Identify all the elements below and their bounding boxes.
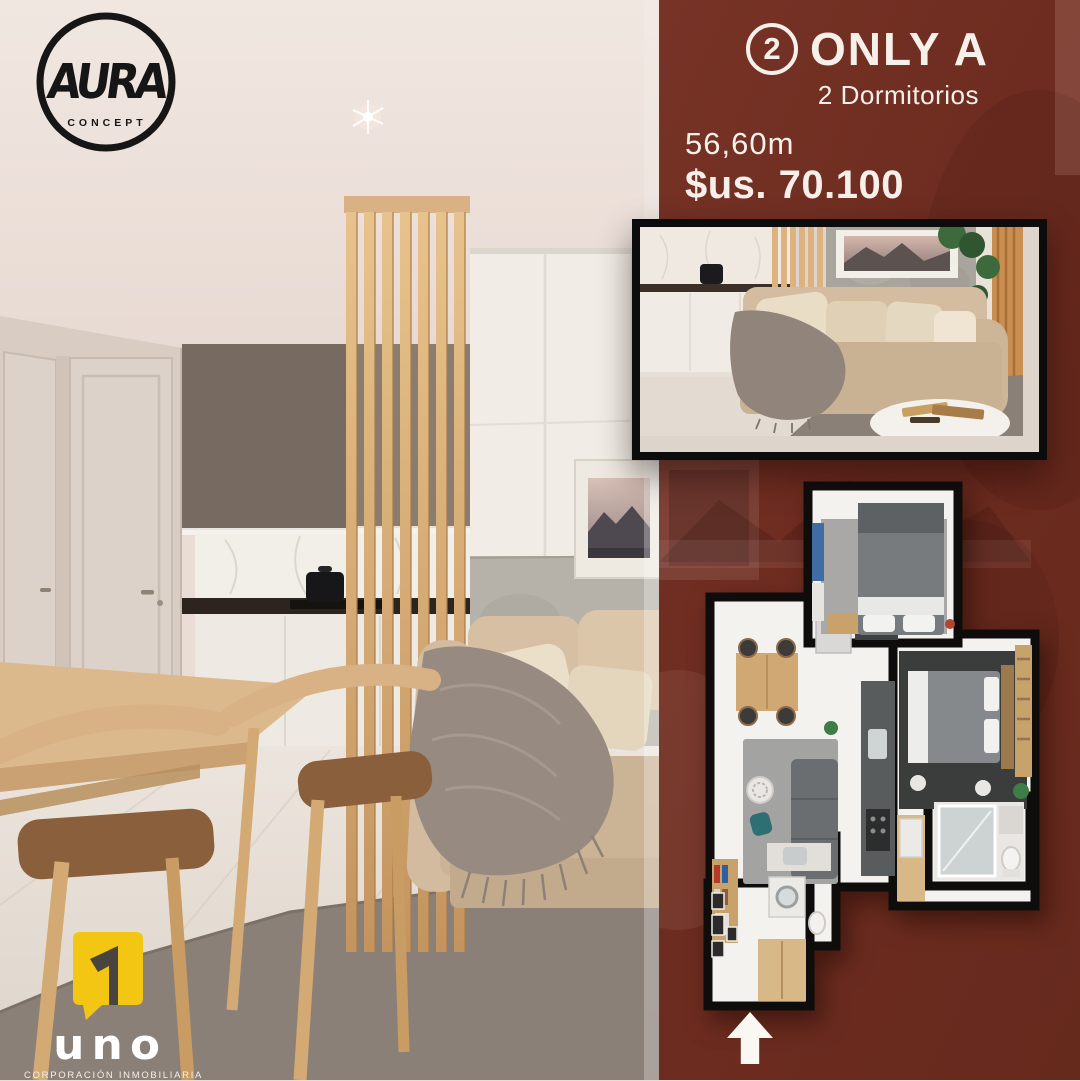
floorplan-bathroom1-furniture: [934, 802, 1024, 880]
circled-number-badge: 2: [746, 23, 798, 75]
offer-subtitle: 2 Dormitorios: [659, 80, 979, 111]
aura-logo-wordmark: AURA: [44, 53, 173, 109]
door-lock: [157, 600, 163, 606]
panel-edge-light-band: [644, 0, 659, 1080]
door-handle: [141, 590, 154, 595]
uno-logo: uno CORPORACIÓN INMOBILIARIA: [24, 928, 184, 1081]
uno-logo-mark: [24, 928, 184, 1020]
floorplan-bedroom1-furniture: [812, 503, 955, 635]
aura-logo: AURA CONCEPT: [26, 8, 196, 163]
offer-header: 2 ONLY A: [659, 22, 989, 76]
offer-area: 56,60m: [685, 126, 904, 162]
uno-logo-tagline: CORPORACIÓN INMOBILIARIA: [24, 1070, 184, 1081]
offer-price: $us. 70.100: [685, 163, 904, 208]
floor-plan: [703, 481, 1043, 1011]
uno-logo-wordmark: uno: [24, 1025, 190, 1065]
sofa: [405, 610, 682, 908]
offer-specs: 56,60m $us. 70.100: [685, 126, 904, 208]
cooking-pot: [306, 572, 344, 602]
offer-title: ONLY A: [810, 22, 989, 76]
aura-logo-tagline: CONCEPT: [67, 117, 146, 129]
interior-inset-photo: [632, 219, 1047, 460]
door-handle: [40, 588, 51, 592]
counter-speaker: [700, 264, 723, 284]
